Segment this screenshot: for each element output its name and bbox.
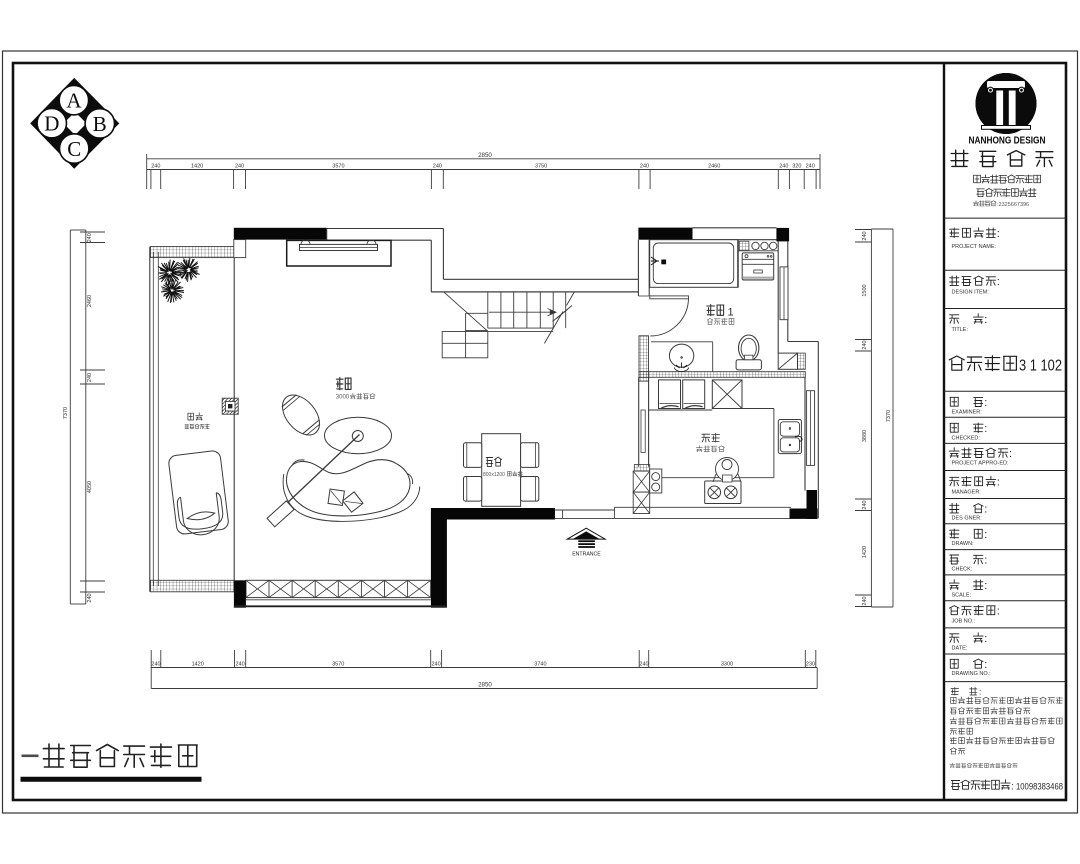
svg-text:3740: 3740: [534, 662, 546, 668]
svg-text:3570: 3570: [332, 163, 344, 169]
svg-text::: :: [1009, 448, 1012, 460]
svg-text:TITLE:: TITLE:: [952, 327, 969, 333]
svg-text::: :: [1011, 782, 1014, 793]
svg-text:ENTRANCE: ENTRANCE: [572, 552, 601, 558]
svg-text:240: 240: [862, 231, 868, 240]
svg-text:DES GNER:: DES GNER:: [952, 516, 983, 522]
svg-text::: :: [984, 423, 987, 435]
svg-text:1500: 1500: [862, 284, 868, 296]
svg-text::: :: [984, 555, 987, 567]
svg-text:240: 240: [639, 662, 648, 668]
svg-text:2850: 2850: [478, 152, 492, 159]
svg-text:1420: 1420: [191, 163, 203, 169]
svg-text:PROJECT APPRO-ED:: PROJECT APPRO-ED:: [952, 461, 1010, 467]
svg-text:240: 240: [640, 163, 649, 169]
svg-text:240: 240: [235, 163, 244, 169]
svg-text:3300: 3300: [721, 662, 733, 668]
svg-text:CHECK:: CHECK:: [952, 567, 973, 573]
svg-text:2460: 2460: [708, 163, 720, 169]
svg-text:800x1200: 800x1200: [483, 472, 505, 478]
svg-text:3880: 3880: [862, 430, 868, 442]
svg-text:240: 240: [87, 373, 93, 382]
svg-text::: :: [979, 687, 981, 697]
svg-text::: :: [997, 477, 1000, 489]
svg-text:DRAWING NO.:: DRAWING NO.:: [952, 671, 992, 677]
svg-text:3570: 3570: [332, 662, 344, 668]
svg-text:1: 1: [728, 307, 734, 319]
svg-text:A: A: [66, 89, 82, 113]
svg-text:DESIGN ITEM:: DESIGN ITEM:: [952, 290, 990, 296]
svg-text:7370: 7370: [63, 407, 69, 419]
svg-text:JOB NO.:: JOB NO.:: [952, 619, 976, 625]
svg-text:7370: 7370: [886, 410, 892, 422]
svg-text:240: 240: [433, 163, 442, 169]
svg-text:4050: 4050: [87, 481, 93, 493]
svg-text::: :: [984, 633, 987, 645]
svg-text::: :: [984, 314, 987, 326]
svg-text:DATE:: DATE:: [952, 646, 968, 652]
svg-text:240: 240: [779, 163, 788, 169]
svg-text:CHECKED:: CHECKED:: [952, 436, 981, 442]
svg-text::: :: [984, 504, 987, 516]
svg-text:NANHONG DESIGN: NANHONG DESIGN: [969, 135, 1046, 147]
svg-text:MANAGER:: MANAGER:: [952, 490, 982, 496]
svg-text:2850: 2850: [478, 682, 492, 689]
svg-text:SCALE:: SCALE:: [952, 593, 972, 599]
svg-text::2325667396: :2325667396: [997, 202, 1029, 208]
svg-text:240: 240: [862, 500, 868, 509]
svg-text:C: C: [67, 137, 81, 161]
svg-text::: :: [984, 659, 987, 671]
svg-text:2460: 2460: [87, 295, 93, 307]
svg-text:10098383468: 10098383468: [1016, 782, 1063, 793]
svg-text:3750: 3750: [535, 163, 547, 169]
svg-text:D: D: [44, 112, 59, 136]
svg-text::: :: [984, 580, 987, 592]
svg-text:EXAMINER:: EXAMINER:: [952, 410, 983, 416]
svg-text:240: 240: [862, 340, 868, 349]
svg-text:1420: 1420: [862, 546, 868, 558]
svg-text:240: 240: [236, 662, 245, 668]
svg-text:B: B: [93, 112, 107, 136]
svg-text::: :: [997, 276, 1000, 288]
svg-text::: :: [997, 228, 1000, 240]
svg-text:PROJECT NAME:: PROJECT NAME:: [952, 244, 997, 250]
svg-text:240: 240: [87, 233, 93, 242]
svg-text:320: 320: [792, 163, 801, 169]
svg-text:240: 240: [432, 662, 441, 668]
svg-text:240: 240: [862, 596, 868, 605]
svg-text:240: 240: [151, 163, 160, 169]
svg-text:240: 240: [806, 163, 815, 169]
svg-text:240: 240: [87, 593, 93, 602]
svg-text:DRAWN:: DRAWN:: [952, 541, 975, 547]
svg-text:230: 230: [806, 662, 815, 668]
svg-text:1420: 1420: [192, 662, 204, 668]
svg-text:240: 240: [151, 662, 160, 668]
svg-text::: :: [984, 397, 987, 409]
svg-text::: :: [984, 529, 987, 541]
svg-text::: :: [997, 606, 1000, 618]
svg-text:3000: 3000: [336, 395, 350, 401]
svg-text:3 1 102: 3 1 102: [1019, 358, 1062, 375]
